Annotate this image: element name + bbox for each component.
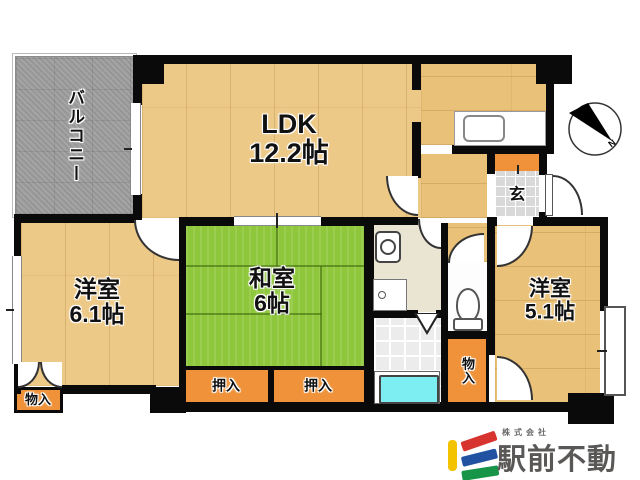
wall: [487, 154, 495, 174]
western-room2-label: 洋室 5.1帖: [525, 278, 575, 323]
oshiire-right-label: 押入: [304, 378, 332, 393]
genkan-tick: [517, 165, 519, 174]
wall: [14, 214, 134, 223]
ldk-name: LDK: [261, 109, 317, 139]
wall-stub: [412, 58, 421, 90]
western-room2-size: 5.1帖: [525, 300, 575, 323]
wall: [179, 217, 186, 403]
bath-door-triangle: [417, 314, 437, 331]
oshiire-left-label: 押入: [212, 378, 240, 393]
closet-bottom-left-label: 物入: [25, 393, 51, 407]
bay-window: [604, 306, 626, 396]
wall: [546, 58, 554, 154]
western-room2-name: 洋室: [529, 277, 571, 300]
company-logo: 株式会社 駅前不動産: [0, 420, 640, 480]
japanese-room-label: 和室 6帖: [249, 266, 295, 316]
entrance-door-leaf: [545, 174, 553, 216]
tatami-line: [320, 266, 322, 367]
floor-plan: N バルコニー LDK 12.2帖 洋室 6.1帖 和室 6帖 洋室 5.1帖 …: [0, 0, 640, 480]
window-tick: [6, 309, 14, 311]
bathtub-icon: [379, 375, 439, 404]
wall: [133, 55, 142, 105]
wall-thin: [268, 368, 274, 404]
logo-blue-stripe: [461, 448, 498, 466]
wall: [374, 310, 418, 318]
toilet-tank-icon: [453, 318, 483, 331]
closet-right-label: 物入: [460, 357, 474, 385]
kitchen-sink-icon: [463, 115, 505, 142]
japanese-room-name: 和室: [249, 265, 295, 291]
western-room1-size: 6.1帖: [70, 301, 125, 327]
wall: [364, 217, 374, 405]
wall: [14, 214, 21, 256]
logo-green-stripe: [461, 465, 499, 480]
balcony-label: バルコニー: [65, 89, 83, 184]
logo-company-name: 駅前不動産: [497, 436, 640, 480]
washing-machine-drum-icon: [380, 239, 396, 255]
wall-stub: [412, 122, 421, 178]
washbasin-faucet-icon: [378, 291, 386, 299]
hallway-floor: [421, 154, 487, 218]
wall: [452, 145, 548, 154]
wall: [600, 217, 608, 311]
compass-north-icon: N: [563, 99, 629, 161]
wall: [133, 194, 142, 223]
wall: [539, 154, 547, 175]
wall-thin: [445, 331, 489, 336]
western-room1-label: 洋室 6.1帖: [70, 277, 125, 327]
wall: [374, 217, 418, 225]
wall: [133, 55, 572, 64]
wall: [150, 402, 572, 412]
window-tick: [276, 213, 278, 228]
western-room1-name: 洋室: [74, 276, 120, 302]
tatami-line: [276, 226, 278, 267]
logo-yellow-bar: [448, 440, 457, 471]
ldk-label: LDK 12.2帖: [249, 110, 329, 168]
wall: [600, 395, 608, 404]
japanese-room-size: 6帖: [254, 290, 290, 316]
window-tick: [124, 148, 132, 150]
wall: [179, 217, 235, 226]
ldk-size: 12.2帖: [249, 138, 329, 168]
toilet-bowl-icon: [456, 288, 480, 322]
entrance-door-arc: [553, 175, 583, 215]
window-tick: [597, 350, 607, 352]
wall-corner: [536, 55, 572, 84]
genkan-label: 玄: [509, 186, 525, 203]
wall: [62, 385, 156, 394]
